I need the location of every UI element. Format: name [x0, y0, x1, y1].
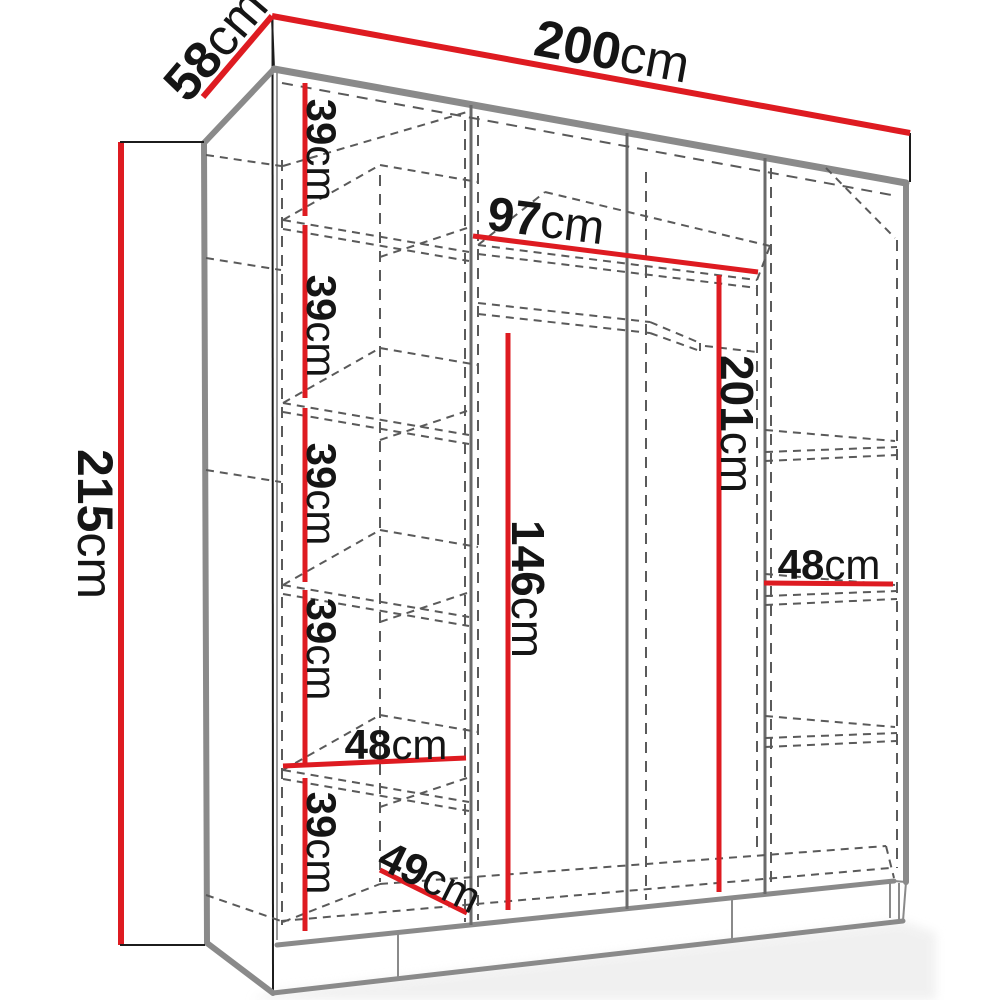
- dim-right-shelf-width-label: 48cm: [778, 541, 881, 588]
- dim-gap5-label: 39cm: [299, 792, 346, 895]
- hanging-rail: [478, 303, 757, 352]
- wardrobe-svg: 200cm 58cm 215cm 39cm 39cm 39cm 39cm 39c…: [0, 0, 1000, 1000]
- dim-height-label: 215cm: [67, 449, 123, 599]
- dim-hanging-height-label: 146cm: [502, 520, 554, 658]
- dim-gap3-label: 39cm: [299, 443, 346, 546]
- dim-gap2-label: 39cm: [299, 275, 346, 378]
- dim-gap1-label: 39cm: [299, 99, 346, 202]
- wardrobe-dimension-diagram: 200cm 58cm 215cm 39cm 39cm 39cm 39cm 39c…: [0, 0, 1000, 1000]
- dim-mid-width-label: 97cm: [484, 187, 607, 254]
- dim-depth-label: 58cm: [153, 0, 280, 112]
- dim-gap4-label: 39cm: [299, 598, 346, 701]
- dim-left-shelf-width-label: 48cm: [345, 721, 448, 768]
- dim-right-height-label: 201cm: [711, 355, 763, 493]
- floor-shadow: [252, 921, 936, 1000]
- right-shelves: [765, 430, 897, 747]
